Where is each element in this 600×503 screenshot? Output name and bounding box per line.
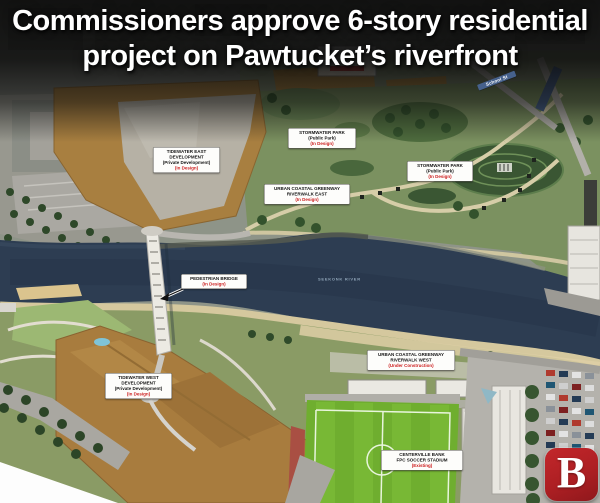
label-stormwater-park-east: STORMWATER PARK (Public Park) (In Design… bbox=[407, 161, 473, 182]
label-pedestrian-bridge: PEDESTRIAN BRIDGE (In Design) bbox=[181, 274, 247, 289]
brand-logo: B bbox=[545, 448, 598, 501]
label-status: (In Design) bbox=[155, 166, 218, 172]
label-status: (In Design) bbox=[290, 141, 354, 147]
label-riverwalk-west: URBAN COASTAL GREENWAY RIVERWALK WEST (U… bbox=[367, 350, 455, 371]
brand-letter: B bbox=[557, 451, 586, 498]
label-stormwater-park-west: STORMWATER PARK (Public Park) (In Design… bbox=[288, 128, 356, 149]
label-tidewater-east: TIDEWATER EAST DEVELOPMENT (Private Deve… bbox=[153, 147, 220, 173]
river-name-label: SEEKONK RIVER bbox=[318, 277, 361, 282]
label-soccer-stadium: CENTERVILLE BANK FPC SOCCER STADIUM (Exi… bbox=[381, 450, 463, 471]
label-status: (In Design) bbox=[409, 174, 471, 180]
label-riverwalk-east: URBAN COASTAL GREENWAY RIVERWALK EAST (I… bbox=[264, 184, 350, 205]
headline: Commissioners approve 6-story residentia… bbox=[0, 2, 600, 74]
label-status: (In Design) bbox=[107, 392, 170, 398]
label-status: (Under Construction) bbox=[369, 363, 453, 369]
label-status: (In Design) bbox=[183, 282, 245, 288]
label-tidewater-west: TIDEWATER WEST DEVELOPMENT (Private Deve… bbox=[105, 373, 172, 399]
label-status: (Existing) bbox=[383, 463, 461, 469]
label-status: (In Design) bbox=[266, 197, 348, 203]
news-graphic: Commissioners approve 6-story residentia… bbox=[0, 0, 600, 503]
